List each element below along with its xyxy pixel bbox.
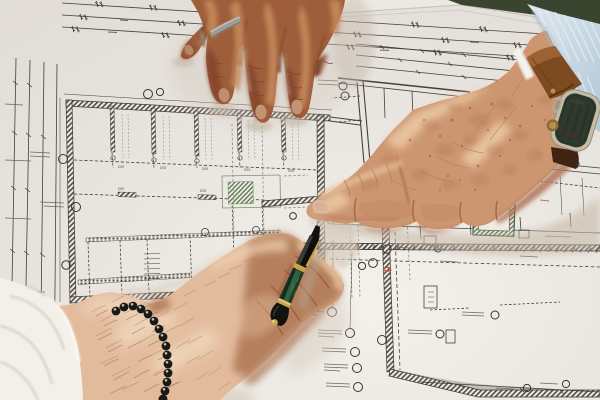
svg-text:D92: D92 xyxy=(288,169,294,173)
svg-text:D93: D93 xyxy=(244,168,250,172)
svg-text:D92: D92 xyxy=(160,166,166,170)
svg-text:D93: D93 xyxy=(202,167,208,171)
svg-text:D92: D92 xyxy=(118,165,124,169)
svg-text:D92: D92 xyxy=(118,187,124,191)
svg-text:D93: D93 xyxy=(200,189,206,193)
